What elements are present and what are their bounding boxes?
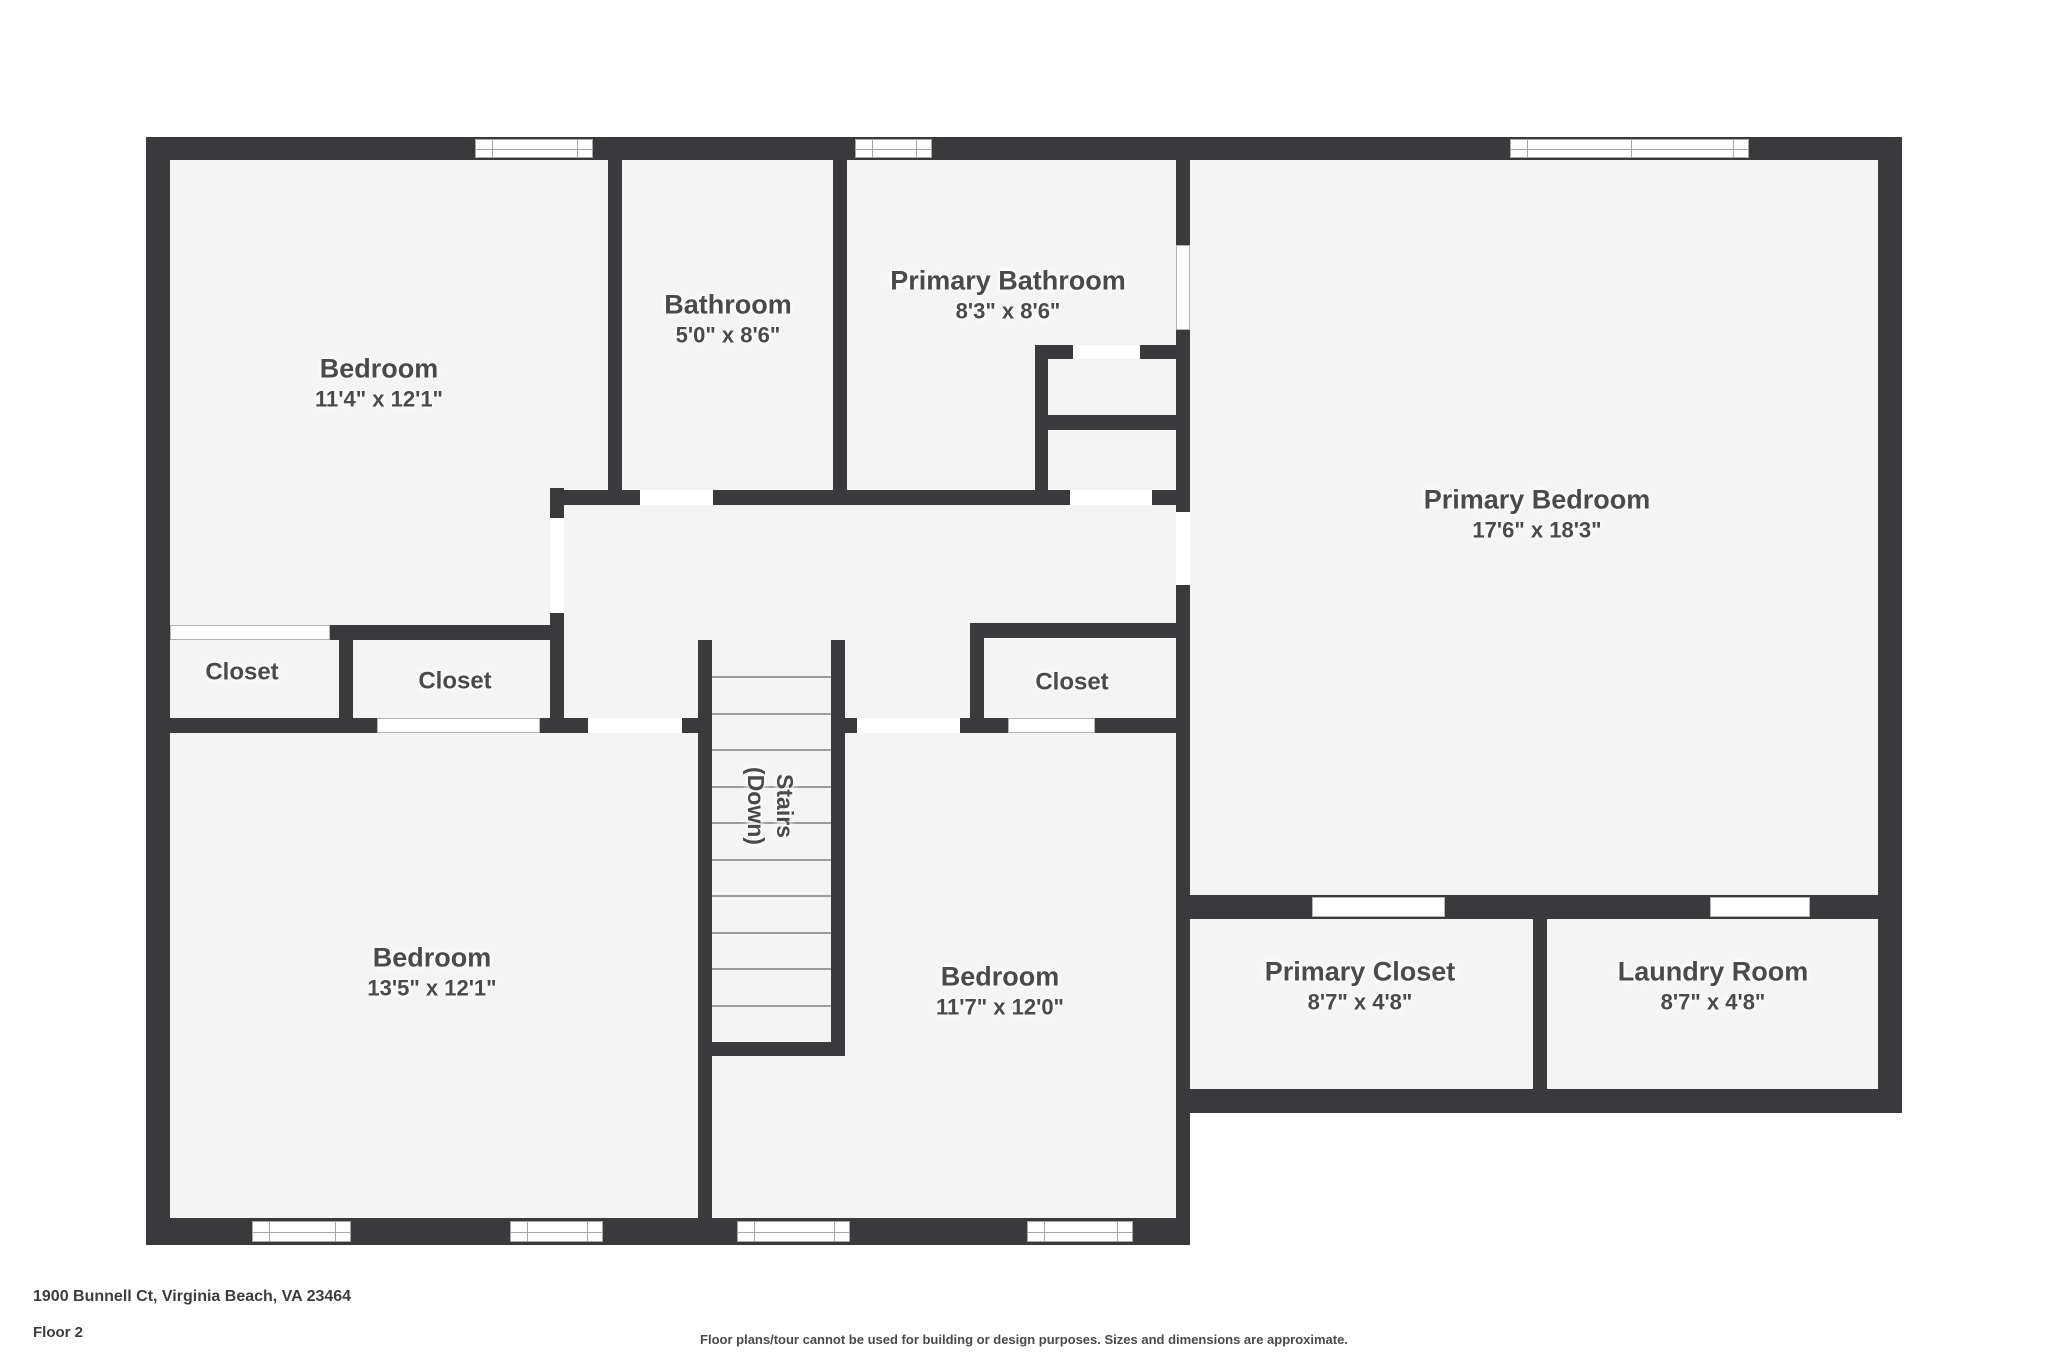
window [510,1221,603,1242]
address-text: 1900 Bunnell Ct, Virginia Beach, VA 2346… [33,1288,351,1306]
wall-segment [698,1042,845,1056]
window [475,139,593,158]
wall-segment [970,623,984,733]
window [737,1221,850,1242]
room-name: Bathroom [664,289,792,322]
room-dimensions: 13'5" x 12'1" [367,975,496,1003]
wall-segment [698,640,712,1228]
wall-segment [1095,718,1190,733]
window-divider [1117,1222,1118,1241]
door-opening [857,718,960,733]
room-name: Bedroom [936,961,1064,994]
room-dimensions: 17'6" x 18'3" [1424,517,1651,545]
wall-segment [146,718,377,733]
closet-opening [377,718,540,733]
window-divider [916,140,917,157]
room-dimensions: 8'7" x 4'8" [1618,989,1809,1017]
wall-segment [608,160,622,503]
stair-tread [712,1005,831,1007]
room-label-bedroom-top-left: Bedroom 11'4" x 12'1" [315,353,443,414]
wall-segment [1176,160,1190,245]
window [1027,1221,1133,1242]
room-name: Closet [418,665,491,698]
window-divider [269,1222,270,1241]
wall-segment [1176,585,1190,1245]
closet-opening [170,625,330,640]
closet-opening [1312,897,1445,917]
stairs-direction-text: (Down) [741,767,770,845]
stair-tread [712,713,831,715]
window-divider [1527,140,1528,157]
room-name: Bedroom [367,942,496,975]
room-label-primary-closet: Primary Closet 8'7" x 4'8" [1265,956,1456,1017]
closet-opening [1710,897,1810,917]
window-pane-line [476,149,592,150]
window-divider [587,1222,588,1241]
floor-plan-page: { "colors": { "wall": "#3a3a3c", "floor"… [0,0,2048,1365]
door-opening [1070,490,1152,505]
stair-tread [712,676,831,678]
wall-segment [146,137,170,1245]
room-label-primary-bedroom: Primary Bedroom 17'6" x 18'3" [1424,484,1651,545]
wall-segment [682,718,698,733]
window-pane-line [1511,149,1748,150]
room-dimensions: 5'0" x 8'6" [664,322,792,350]
stair-tread [712,932,831,934]
room-label-stairs: Stairs (Down) [741,767,799,845]
door-opening [1176,512,1190,585]
room-name: Primary Bathroom [890,265,1126,298]
room-label-bathroom: Bathroom 5'0" x 8'6" [664,289,792,350]
wall-segment [1878,137,1902,1113]
window-divider [492,140,493,157]
stair-tread [712,859,831,861]
window [855,139,932,158]
wall-segment [540,718,588,733]
room-label-bedroom-bottom-middle: Bedroom 11'7" x 12'0" [936,961,1064,1022]
wall-segment [550,490,640,505]
room-name: Bedroom [315,353,443,386]
wall-segment [1035,345,1073,359]
room-label-primary-bathroom: Primary Bathroom 8'3" x 8'6" [890,265,1126,326]
closet-opening [1008,718,1095,733]
window-divider [1631,140,1632,157]
room-name: Closet [205,656,278,689]
stair-tread [712,749,831,751]
room-label-bedroom-bottom-left: Bedroom 13'5" x 12'1" [367,942,496,1003]
wall-segment [1140,345,1176,359]
room-dimensions: 11'7" x 12'0" [936,994,1064,1022]
window-divider [754,1222,755,1241]
door-opening [640,490,713,505]
room-label-closet-left: Closet [205,656,278,689]
room-name: Closet [1035,666,1108,699]
room-name: Primary Bedroom [1424,484,1651,517]
window-divider [527,1222,528,1241]
room-dimensions: 11'4" x 12'1" [315,386,443,414]
wall-segment [1047,415,1176,430]
wall-segment [1176,330,1190,512]
room-dimensions: 8'7" x 4'8" [1265,989,1456,1017]
stairs-label-text: Stairs [770,767,799,845]
room-label-laundry-room: Laundry Room 8'7" x 4'8" [1618,956,1809,1017]
closet-opening [1176,245,1190,330]
window-pane-line [511,1232,602,1233]
wall-segment [960,718,1008,733]
window [252,1221,351,1242]
wall-segment [713,490,1070,505]
room-label-closet-hall: Closet [1035,666,1108,699]
stair-tread [712,895,831,897]
wall-segment [330,625,564,640]
window-divider [1044,1222,1045,1241]
room-dimensions: 8'3" x 8'6" [890,298,1126,326]
disclaimer-text: Floor plans/tour cannot be used for buil… [700,1332,1348,1347]
floor-number-text: Floor 2 [33,1324,83,1341]
room-name: Laundry Room [1618,956,1809,989]
wall-segment [970,623,1190,638]
door-opening [550,518,564,613]
window-divider [834,1222,835,1241]
room-name: Primary Closet [1265,956,1456,989]
wall-segment [1533,919,1547,1113]
wall-segment [833,160,847,503]
room-label-closet-mid-left: Closet [418,665,491,698]
window-divider [577,140,578,157]
window-pane-line [856,149,931,150]
door-opening [588,718,682,733]
wall-segment [1152,490,1190,505]
window-divider [1733,140,1734,157]
wall-segment [845,718,857,733]
window-divider [872,140,873,157]
window-divider [335,1222,336,1241]
floor-plan-canvas: Bedroom 11'4" x 12'1" Bathroom 5'0" x 8'… [0,0,2048,1365]
window [1510,139,1749,158]
stair-tread [712,968,831,970]
wall-segment [831,640,845,1055]
door-opening [1073,345,1140,359]
